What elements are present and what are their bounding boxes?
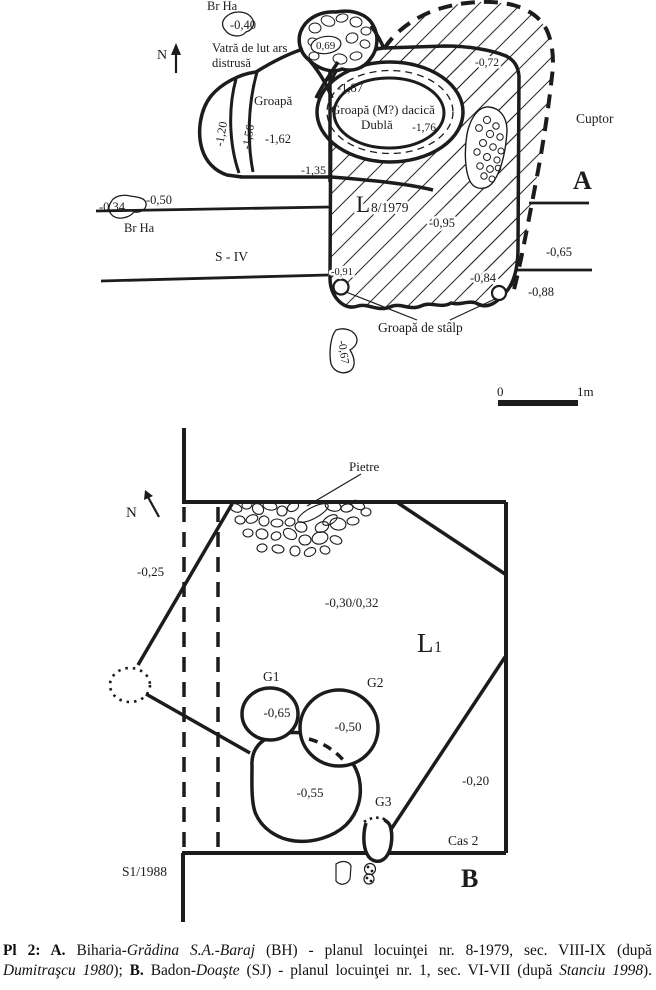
label-depth-020: -0,20 [462, 773, 489, 788]
label-br-ha-left: Br Ha [124, 221, 155, 235]
pit-g3 [364, 818, 392, 862]
north-arrow-b [144, 490, 159, 517]
label-dacian-2: Dublă [361, 117, 393, 132]
caption-plate-number: Pl 2: A. [3, 942, 66, 959]
label-depth-176: -1,76 [412, 122, 436, 134]
plate-letter-b: B [461, 864, 478, 893]
scanned-plate-page: Br Ha -0,40 N Vatră de lut ars distrusă … [0, 0, 656, 990]
label-house-b-prefix: L [417, 628, 434, 658]
label-depth-065-b: -0,65 [263, 705, 290, 720]
label-cas-2: Cas 2 [448, 833, 478, 848]
label-house-a-suffix: 8/1979 [371, 200, 409, 215]
label-depth-067: -0,67 [335, 339, 350, 365]
scale-bar [498, 400, 578, 406]
dotted-pit-west [110, 668, 150, 702]
label-depth-034: -0,34 [99, 200, 126, 214]
stones-cluster [229, 498, 371, 558]
label-depth-072: -0,72 [475, 57, 499, 69]
label-depth-084: -0,84 [470, 271, 497, 285]
caption-line-1: Pl 2: A. Biharia-Grădina S.A.-Baraj (BH)… [3, 941, 652, 961]
label-g2: G2 [367, 675, 384, 690]
label-house-b-sub: 1 [434, 639, 442, 656]
label-groapa: Groapă [254, 93, 292, 108]
label-depth-088: -0,88 [528, 285, 554, 299]
north-arrow-a [171, 43, 181, 73]
plan-a: Br Ha -0,40 N Vatră de lut ars distrusă … [96, 0, 614, 406]
label-depth-162: -1,62 [265, 132, 291, 146]
label-cuptor: Cuptor [576, 111, 614, 126]
figure-caption: Pl 2: A. Biharia-Grădina S.A.-Baraj (BH)… [3, 941, 652, 981]
label-depth-055: -0,55 [296, 785, 323, 800]
figure-plans: Br Ha -0,40 N Vatră de lut ars distrusă … [0, 0, 656, 940]
caption-line-2: Dumitraşcu 1980); B. Badon-Doaşte (SJ) -… [3, 961, 652, 981]
label-dacian-1: Groapă (M?) dacică [331, 102, 435, 117]
label-g1: G1 [263, 669, 280, 684]
label-groapa-de-stalp: Groapă de stâlp [378, 320, 463, 335]
label-s1-1988: S1/1988 [122, 864, 167, 879]
label-depth-187: -1,87 [337, 81, 363, 95]
label-depth-040: -0,40 [230, 18, 256, 32]
label-scale-zero: 0 [497, 384, 504, 399]
post-hole-right [492, 286, 506, 300]
plan-b: Pietre N -0,25 -0,30/0,32 L 1 G1 -0,65 G… [110, 428, 506, 922]
label-depth-135: -1,35 [301, 163, 326, 177]
label-depth-030-032: -0,30/0,32 [325, 595, 378, 610]
label-scale-1m: 1m [577, 384, 594, 399]
label-depth-091: -0,91 [331, 267, 353, 278]
label-vatra-2: distrusă [212, 56, 251, 70]
label-depth-050-left: -0,50 [146, 193, 172, 207]
label-depth-025: -0,25 [137, 564, 164, 579]
label-s-iv: S - IV [215, 249, 248, 264]
label-hearth-depth: 0,69 [316, 40, 336, 52]
label-vatra-1: Vatră de lut ars [212, 41, 287, 55]
label-north-a: N [157, 48, 167, 63]
label-pietre: Pietre [349, 459, 380, 474]
label-north-b: N [126, 505, 137, 521]
label-house-a-prefix: L [356, 192, 370, 217]
label-br-ha-top: Br Ha [207, 0, 238, 13]
label-g3: G3 [375, 794, 392, 809]
stones-south [336, 862, 376, 885]
label-depth-120: -1,20 [212, 120, 230, 147]
label-depth-050-b: -0,50 [334, 719, 361, 734]
label-depth-095: -0,95 [429, 216, 455, 230]
label-depth-156: -1,56 [239, 123, 257, 150]
label-depth-065-right: -0,65 [546, 245, 572, 259]
plate-letter-a: A [573, 166, 592, 195]
